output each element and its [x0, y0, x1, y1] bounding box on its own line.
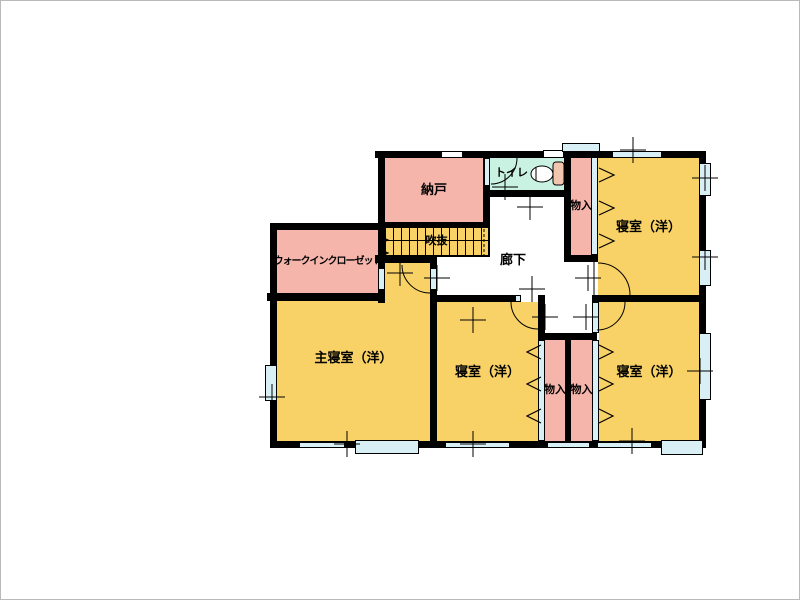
- room-closet-top-label: 物入: [570, 201, 592, 212]
- wall-segment: [270, 223, 385, 230]
- room-walk-in-closet-label: ウォークインクローゼット: [274, 257, 382, 267]
- bay-window: [661, 440, 703, 455]
- master-bedroom-vestibule: [385, 263, 430, 301]
- window: [441, 151, 463, 158]
- room-bedroom-center: 寝室（洋）: [437, 302, 538, 441]
- door-frame: [378, 268, 385, 290]
- room-master-bedroom-label: 主寝室（洋）: [314, 351, 392, 364]
- room-bedroom-bottom-right-label: 寝室（洋）: [616, 365, 681, 378]
- folding-closet-door: [591, 157, 598, 255]
- wall-segment: [267, 293, 385, 301]
- window: [612, 151, 662, 158]
- folding-closet-door: [592, 340, 599, 441]
- window: [699, 250, 711, 286]
- window: [699, 333, 711, 400]
- room-closet-bottom-right-label: 物入: [571, 385, 593, 396]
- window: [445, 442, 510, 448]
- wall-segment: [378, 222, 490, 228]
- window: [597, 442, 652, 448]
- door-frame: [515, 295, 521, 302]
- window: [699, 163, 711, 196]
- room-closet-bottom-left: 物入: [545, 340, 565, 441]
- room-toilet: トイレ: [490, 157, 564, 190]
- bay-window: [355, 440, 419, 454]
- room-bedroom-top-right-label: 寝室（洋）: [616, 220, 681, 233]
- room-bedroom-center-label: 寝室（洋）: [455, 365, 520, 378]
- door-frame: [430, 268, 437, 290]
- wall-segment: [487, 190, 567, 197]
- window: [547, 442, 590, 448]
- wall-segment: [564, 255, 598, 262]
- room-master-bedroom: 主寝室（洋）: [277, 301, 430, 441]
- stair-void-area: 吹抜: [385, 228, 490, 255]
- room-bedroom-bottom-right: 寝室（洋）: [599, 302, 699, 441]
- stair-void-label: 吹抜: [426, 236, 448, 247]
- room-closet-bottom-right: 物入: [571, 340, 592, 441]
- room-walk-in-closet: ウォークインクローゼット: [277, 230, 378, 293]
- room-nando: 納戸: [385, 157, 483, 222]
- door-frame: [484, 158, 490, 186]
- window: [299, 442, 345, 448]
- room-toilet-label: トイレ: [495, 168, 528, 179]
- wall-segment: [430, 295, 515, 302]
- floorplan-canvas: 納戸 トイレ 物入 寝室（洋） ウォークインクローゼット 吹抜 主寝室（洋） 寝…: [0, 0, 800, 600]
- wall-segment: [592, 295, 706, 302]
- wall-segment: [430, 290, 437, 441]
- door-frame: [592, 302, 599, 333]
- room-nando-label: 納戸: [421, 183, 447, 196]
- room-closet-bottom-left-label: 物入: [544, 385, 566, 396]
- bay-window: [562, 143, 600, 152]
- wall-segment: [437, 255, 490, 257]
- window: [543, 150, 564, 158]
- wall-segment: [375, 255, 437, 263]
- wall-segment: [538, 333, 597, 340]
- hallway-label: 廊下: [500, 249, 526, 268]
- window: [265, 365, 277, 401]
- room-bedroom-top-right: 寝室（洋）: [598, 158, 699, 295]
- room-closet-top: 物入: [571, 157, 591, 255]
